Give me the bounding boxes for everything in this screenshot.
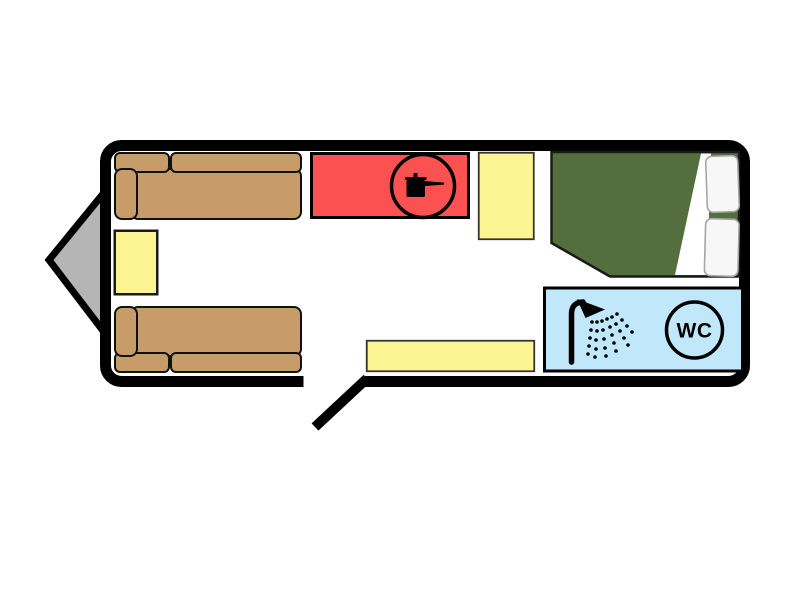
tow-hitch-triangle bbox=[49, 189, 107, 336]
cabinet-left bbox=[115, 231, 158, 295]
double-bed bbox=[552, 152, 740, 277]
front-sofa-backrest-right bbox=[171, 153, 301, 172]
cabinet-mid bbox=[479, 153, 534, 240]
caravan-floorplan: WC bbox=[0, 0, 800, 600]
rear-sofa-seat bbox=[131, 307, 301, 356]
bed-pillow-top bbox=[706, 155, 740, 212]
rear-sofa-backrest-right bbox=[171, 353, 301, 372]
cabinet-bottom bbox=[367, 341, 535, 372]
front-sofa-armrest bbox=[115, 169, 137, 219]
front-sofa bbox=[115, 153, 301, 219]
rear-sofa bbox=[115, 307, 301, 372]
bed-pillow-bottom bbox=[704, 219, 739, 277]
rear-sofa-armrest bbox=[115, 307, 137, 356]
wc-label: WC bbox=[677, 320, 713, 343]
front-sofa-seat bbox=[131, 169, 301, 219]
floorplan-svg: WC bbox=[0, 0, 800, 600]
